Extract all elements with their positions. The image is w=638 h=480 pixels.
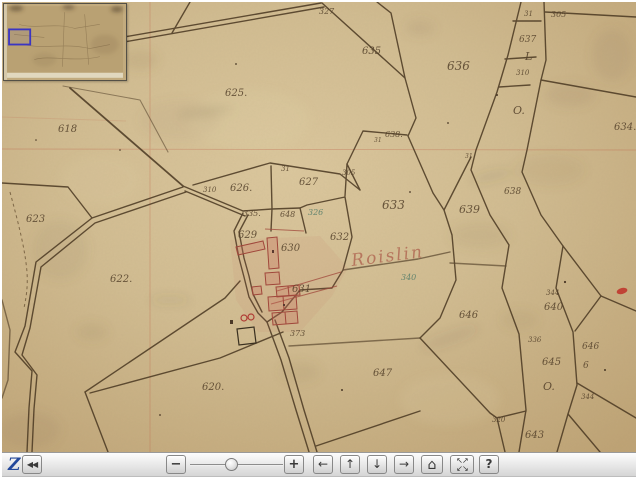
parcel-number: 638 <box>504 187 521 197</box>
parcel-number: 625. <box>225 88 247 99</box>
parcel-number: L <box>524 50 532 63</box>
fullscreen-expand-button[interactable]: ↖↗ ↙↘ <box>450 455 474 474</box>
pan-down-button[interactable]: ↓ <box>367 455 387 474</box>
pan-left-button[interactable]: ← <box>313 455 333 474</box>
zoom-out-button[interactable]: − <box>166 455 186 474</box>
navigator-thumbnail <box>4 4 126 80</box>
parcel-number: 643 <box>525 430 544 441</box>
parcel-number: 336 <box>528 336 542 344</box>
help-button[interactable]: ? <box>479 455 499 474</box>
parcel-number: 310 <box>203 186 217 194</box>
parcel-number: 630 <box>281 243 301 254</box>
parcel-number: 305 <box>551 10 566 19</box>
parcel-number: 639 <box>459 203 480 216</box>
parcel-number: 646 <box>582 342 599 352</box>
parcel-number: 635 <box>362 46 381 57</box>
reset-home-button[interactable]: ⌂ <box>421 455 443 474</box>
navigator-view-rect[interactable] <box>9 29 30 44</box>
parcel-number: 626. <box>230 183 252 194</box>
parcel-number: 632 <box>330 232 349 243</box>
viewer-window: 327635625.618623622.620.310626.31627335.… <box>0 0 638 480</box>
parcel-number: 373 <box>290 329 305 338</box>
parcel-number: 631 <box>292 284 311 295</box>
parcel-number: 623 <box>26 214 45 225</box>
parcel-number: 637 <box>519 35 536 45</box>
parcel-number: 320 <box>492 416 506 424</box>
parcel-number: 327 <box>319 7 335 16</box>
parcel-number: 326 <box>308 208 323 217</box>
parcel-number: 31 <box>524 10 533 18</box>
parcel-number: 31 <box>374 137 382 144</box>
parcel-number: 310 <box>516 69 530 77</box>
parcel-number: 636 <box>447 59 470 73</box>
parcel-number: 640 <box>544 302 564 313</box>
zoomify-logo: Z <box>8 455 20 475</box>
parcel-number: 344 <box>581 393 594 401</box>
parcel-number: O. <box>543 380 555 393</box>
parcel-number: 31 <box>281 165 290 173</box>
parcel-number: 627 <box>299 177 319 188</box>
pan-up-button[interactable]: ↑ <box>340 455 360 474</box>
parcel-number: 335. <box>243 209 261 218</box>
parcel-number: 633 <box>382 198 405 212</box>
parcel-number: O. <box>513 104 525 117</box>
parcel-number: 344 <box>546 289 559 297</box>
parcel-number: 648 <box>280 210 295 219</box>
parcel-number: 629 <box>238 230 258 241</box>
parcel-number: 647 <box>373 368 393 379</box>
navigator-panel[interactable] <box>3 3 127 81</box>
zoom-slider <box>190 455 283 474</box>
parcel-number: 305 <box>342 169 356 177</box>
expand-icon: ↙↘ <box>451 465 473 473</box>
parcel-number: 31 <box>465 153 473 160</box>
zoom-in-button[interactable]: + <box>284 455 304 474</box>
parcel-number: 618 <box>58 124 77 135</box>
parcel-number: 620. <box>202 382 224 393</box>
parcel-number: 622. <box>110 274 132 285</box>
toolbar-collapse-button[interactable]: ◀◀ <box>22 455 42 474</box>
zoom-slider-handle[interactable] <box>225 458 238 471</box>
parcel-number: 638. <box>385 130 403 139</box>
parcel-number: 646 <box>459 310 479 321</box>
parcel-number: 340 <box>401 273 416 282</box>
pan-right-button[interactable]: → <box>394 455 414 474</box>
toolbar: Z ◀◀ − + ← ↑ ↓ → ⌂ ↖↗ ↙↘ ? <box>2 452 636 477</box>
parcel-number: 634. <box>614 122 636 133</box>
parcel-number: 645 <box>542 357 561 368</box>
parcel-number: 6 <box>583 361 589 371</box>
